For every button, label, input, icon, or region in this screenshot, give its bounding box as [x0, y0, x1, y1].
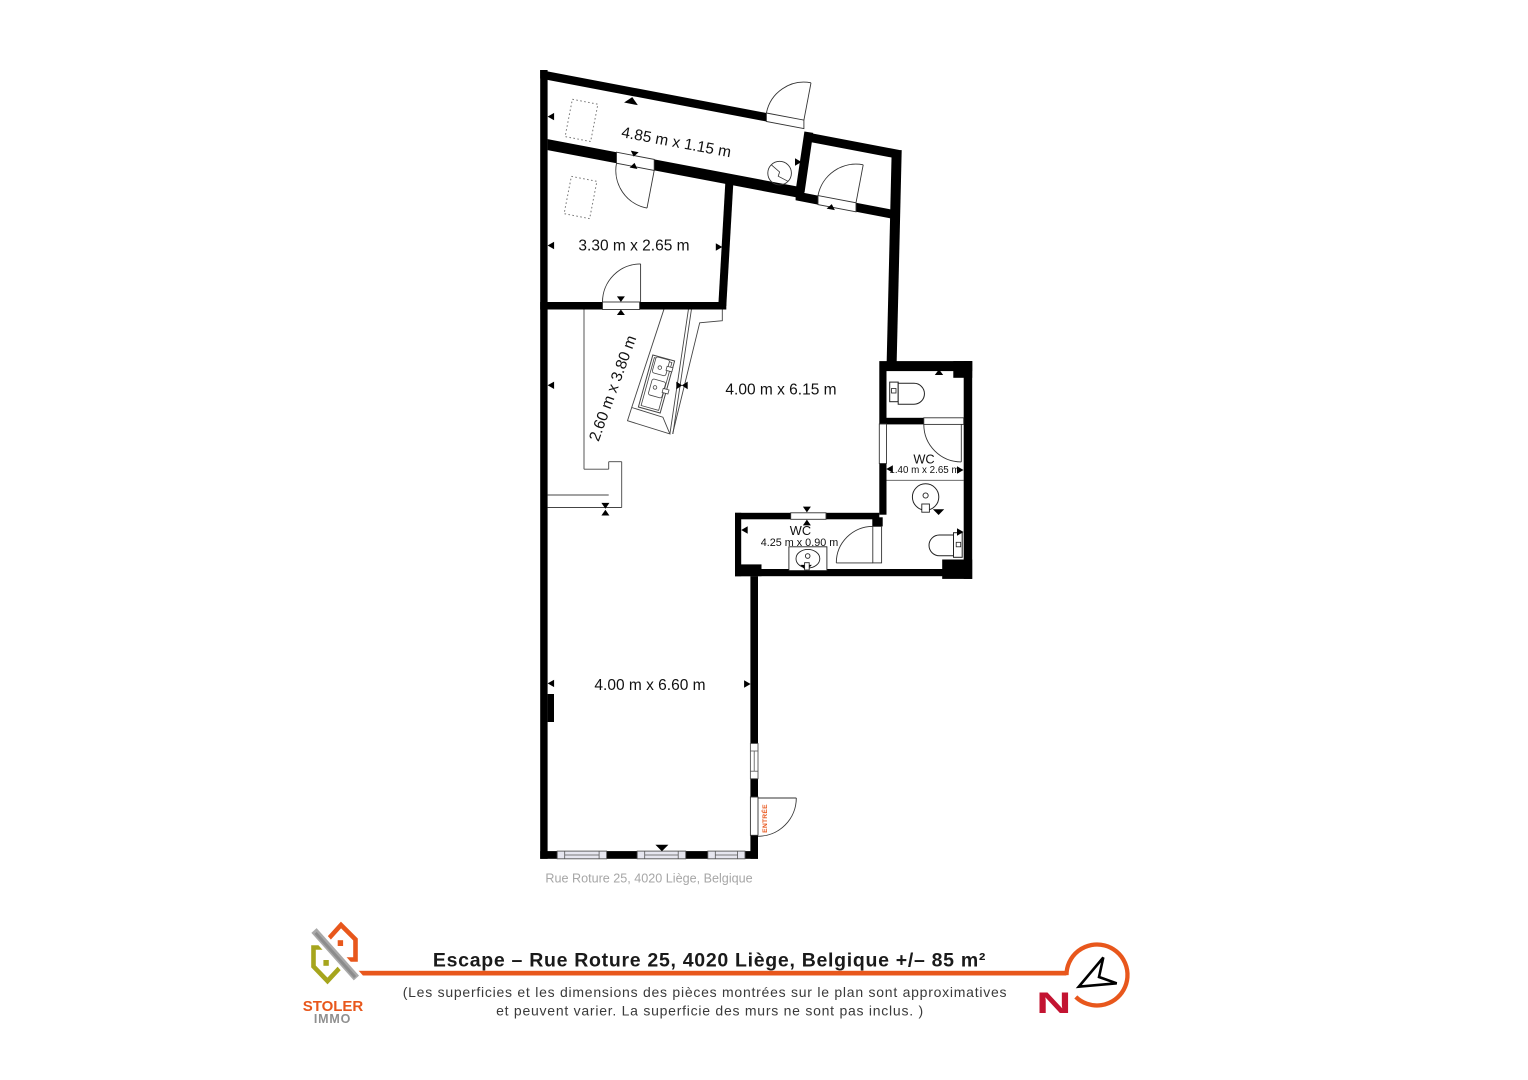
svg-text:4.00 m x 6.60 m: 4.00 m x 6.60 m [594, 677, 705, 694]
svg-text:WC: WC [790, 523, 811, 538]
svg-text:2.60 m x 3.80 m: 2.60 m x 3.80 m [586, 333, 640, 443]
svg-text:4.00 m x 6.15 m: 4.00 m x 6.15 m [725, 381, 836, 398]
svg-text:Escape – Rue Roture 25, 4020 L: Escape – Rue Roture 25, 4020 Liège, Belg… [433, 949, 986, 971]
svg-text:3.30 m x 2.65 m: 3.30 m x 2.65 m [578, 238, 689, 255]
svg-text:ENTRÉE: ENTRÉE [760, 804, 769, 833]
svg-text:(Les superficies et les dimens: (Les superficies et les dimensions des p… [403, 984, 1008, 1000]
svg-text:N: N [1036, 985, 1071, 1019]
svg-text:1.40 m x 2.65 m: 1.40 m x 2.65 m [889, 465, 959, 476]
svg-text:et peuvent varier. La superfic: et peuvent varier. La superficie des mur… [496, 1002, 924, 1018]
svg-text:4.25 m x 0.90 m: 4.25 m x 0.90 m [761, 537, 838, 549]
svg-text:Rue Roture 25, 4020 Liège, Bel: Rue Roture 25, 4020 Liège, Belgique [545, 871, 752, 885]
svg-text:IMMO: IMMO [314, 1012, 351, 1026]
